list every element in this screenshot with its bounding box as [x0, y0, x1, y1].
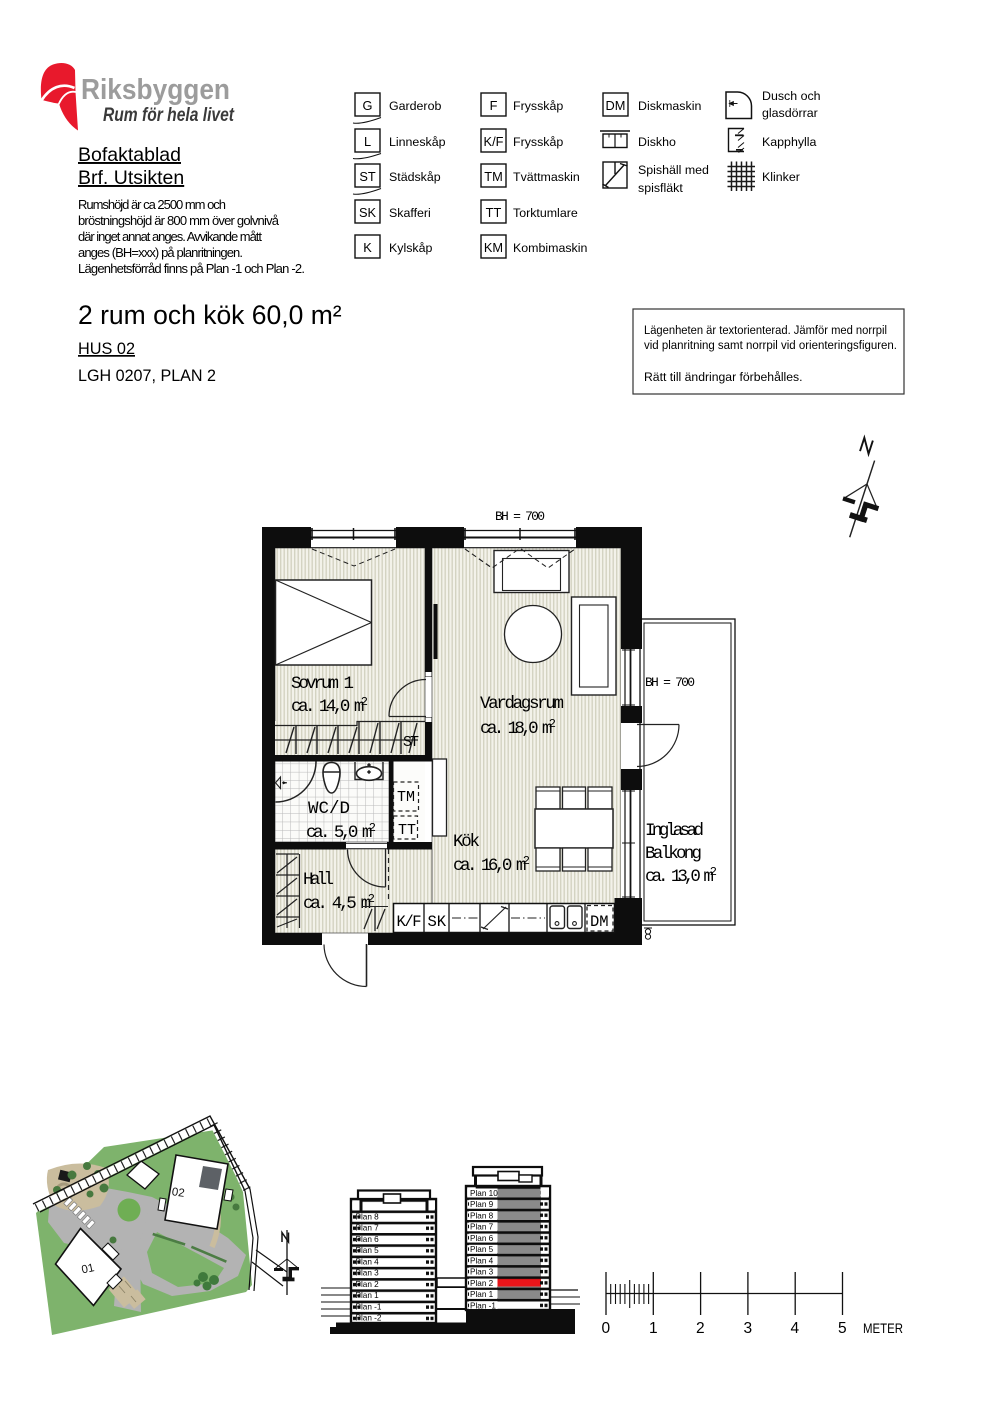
svg-text:3: 3	[744, 1320, 753, 1337]
svg-text:Rumshöjd är ca 2500 mm och: Rumshöjd är ca 2500 mm och	[78, 197, 226, 212]
svg-text:Bofaktablad: Bofaktablad	[78, 144, 181, 166]
svg-text:SK: SK	[359, 205, 377, 220]
svg-text:TT: TT	[398, 822, 416, 839]
svg-text:Plan 6: Plan 6	[356, 1235, 380, 1244]
svg-text:Plan 7: Plan 7	[356, 1224, 380, 1233]
svg-text:2 rum och kök 60,0 m²: 2 rum och kök 60,0 m²	[78, 300, 342, 330]
svg-text:Rum för hela livet: Rum för hela livet	[103, 105, 235, 126]
svg-text:ST: ST	[359, 169, 376, 184]
svg-text:Plan 10: Plan 10	[470, 1189, 498, 1198]
svg-text:Plan 2: Plan 2	[470, 1279, 494, 1288]
svg-text:Kök: Kök	[453, 832, 480, 852]
svg-text:Plan 4: Plan 4	[356, 1257, 380, 1266]
svg-text:ca. 18,0 m2: ca. 18,0 m2	[480, 717, 556, 739]
svg-text:Kylskåp: Kylskåp	[389, 241, 432, 255]
svg-text:Lägenheten är textorienterad.: Lägenheten är textorienterad. Jämför med…	[644, 323, 887, 337]
svg-text:Plan -2: Plan -2	[356, 1314, 382, 1323]
svg-text:4: 4	[791, 1320, 800, 1337]
svg-text:Spishäll med: Spishäll med	[638, 163, 709, 177]
svg-text:Plan 8: Plan 8	[356, 1212, 380, 1221]
svg-text:Kombimaskin: Kombimaskin	[513, 241, 587, 255]
svg-text:G: G	[363, 98, 373, 113]
svg-text:Tvättmaskin: Tvättmaskin	[513, 170, 580, 184]
svg-text:Rätt till ändringar förbehålle: Rätt till ändringar förbehålles.	[644, 370, 803, 384]
svg-text:Plan -1: Plan -1	[356, 1302, 382, 1311]
svg-text:K/F: K/F	[484, 134, 504, 149]
svg-text:Sovrum 1: Sovrum 1	[291, 674, 354, 694]
svg-text:Plan 6: Plan 6	[470, 1234, 494, 1243]
svg-text:DM: DM	[590, 913, 609, 931]
svg-text:Frysskåp: Frysskåp	[513, 99, 563, 113]
svg-text:ca. 5,0 m2: ca. 5,0 m2	[306, 821, 376, 843]
svg-text:Lägenhetsförråd finns på Plan: Lägenhetsförråd finns på Plan -1 och Pla…	[78, 261, 305, 276]
svg-text:Hall: Hall	[303, 870, 334, 890]
svg-text:anges (BH=xxx) på planritninge: anges (BH=xxx) på planritningen.	[78, 245, 243, 260]
svg-text:F: F	[490, 98, 498, 113]
svg-text:ca. 4,5 m2: ca. 4,5 m2	[303, 892, 375, 914]
svg-text:Klinker: Klinker	[762, 170, 800, 184]
svg-text:Garderob: Garderob	[389, 99, 441, 113]
svg-text:Plan 5: Plan 5	[470, 1245, 494, 1254]
svg-text:Vardagsrum: Vardagsrum	[480, 694, 564, 714]
svg-text:Städskåp: Städskåp	[389, 170, 441, 184]
svg-text:Diskho: Diskho	[638, 135, 676, 149]
svg-text:ca. 16,0 m2: ca. 16,0 m2	[453, 854, 530, 876]
svg-text:Plan 3: Plan 3	[470, 1268, 494, 1277]
svg-text:TT: TT	[486, 205, 502, 220]
svg-text:1: 1	[649, 1320, 658, 1337]
svg-text:Linneskåp: Linneskåp	[389, 135, 446, 149]
svg-text:Plan 1: Plan 1	[356, 1291, 380, 1300]
svg-text:METER: METER	[863, 1320, 903, 1336]
svg-text:Plan 9: Plan 9	[470, 1200, 494, 1209]
svg-text:LGH 0207, PLAN 2: LGH 0207, PLAN 2	[78, 366, 216, 385]
svg-text:SK: SK	[428, 913, 447, 931]
svg-text:KM: KM	[484, 240, 503, 255]
svg-text:HUS 02: HUS 02	[78, 339, 135, 358]
svg-text:Inglasad: Inglasad	[645, 821, 704, 841]
svg-text:K/F: K/F	[397, 913, 422, 931]
svg-text:Riksbyggen: Riksbyggen	[81, 74, 230, 106]
svg-text:bröstningshöjd är 800 mm över: bröstningshöjd är 800 mm över golvnivå	[78, 213, 280, 228]
svg-text:Kapphylla: Kapphylla	[762, 135, 817, 149]
svg-text:Plan 4: Plan 4	[470, 1256, 494, 1265]
svg-text:glasdörrar: glasdörrar	[762, 106, 818, 120]
svg-text:spisfläkt: spisfläkt	[638, 181, 683, 195]
svg-text:Frysskåp: Frysskåp	[513, 135, 563, 149]
svg-text:vid planritning samt norrpil v: vid planritning samt norrpil vid oriente…	[644, 338, 897, 352]
svg-text:5: 5	[838, 1320, 847, 1337]
svg-text:Balkong: Balkong	[645, 844, 702, 864]
svg-text:TM: TM	[397, 789, 415, 806]
svg-text:TM: TM	[484, 169, 502, 184]
svg-text:Diskmaskin: Diskmaskin	[638, 99, 701, 113]
svg-text:BH = 700: BH = 700	[495, 509, 545, 524]
svg-text:Plan 3: Plan 3	[356, 1269, 380, 1278]
svg-text:WC/D: WC/D	[308, 799, 350, 819]
svg-text:BH = 700: BH = 700	[645, 675, 695, 690]
svg-text:0: 0	[602, 1320, 611, 1337]
svg-text:Torktumlare: Torktumlare	[513, 206, 578, 220]
svg-text:ca. 13,0 m2: ca. 13,0 m2	[645, 865, 717, 887]
svg-text:ca. 14,0 m2: ca. 14,0 m2	[291, 695, 368, 717]
svg-text:L: L	[364, 134, 371, 149]
svg-text:Brf. Utsikten: Brf. Utsikten	[78, 167, 184, 189]
svg-text:DM: DM	[606, 98, 626, 113]
svg-text:Plan 1: Plan 1	[470, 1290, 494, 1299]
svg-text:2: 2	[696, 1320, 705, 1337]
svg-text:Plan 7: Plan 7	[470, 1223, 494, 1232]
svg-text:Plan 2: Plan 2	[356, 1280, 380, 1289]
svg-text:Skafferi: Skafferi	[389, 206, 431, 220]
svg-text:ST: ST	[403, 734, 419, 751]
svg-text:där inget annat anges. Avvikan: där inget annat anges. Avvikande mått	[78, 229, 262, 244]
svg-text:K: K	[363, 240, 372, 255]
svg-text:Plan 5: Plan 5	[356, 1246, 380, 1255]
svg-text:Plan 8: Plan 8	[470, 1211, 494, 1220]
svg-text:Dusch och: Dusch och	[762, 89, 821, 103]
svg-text:02: 02	[171, 1186, 185, 1200]
